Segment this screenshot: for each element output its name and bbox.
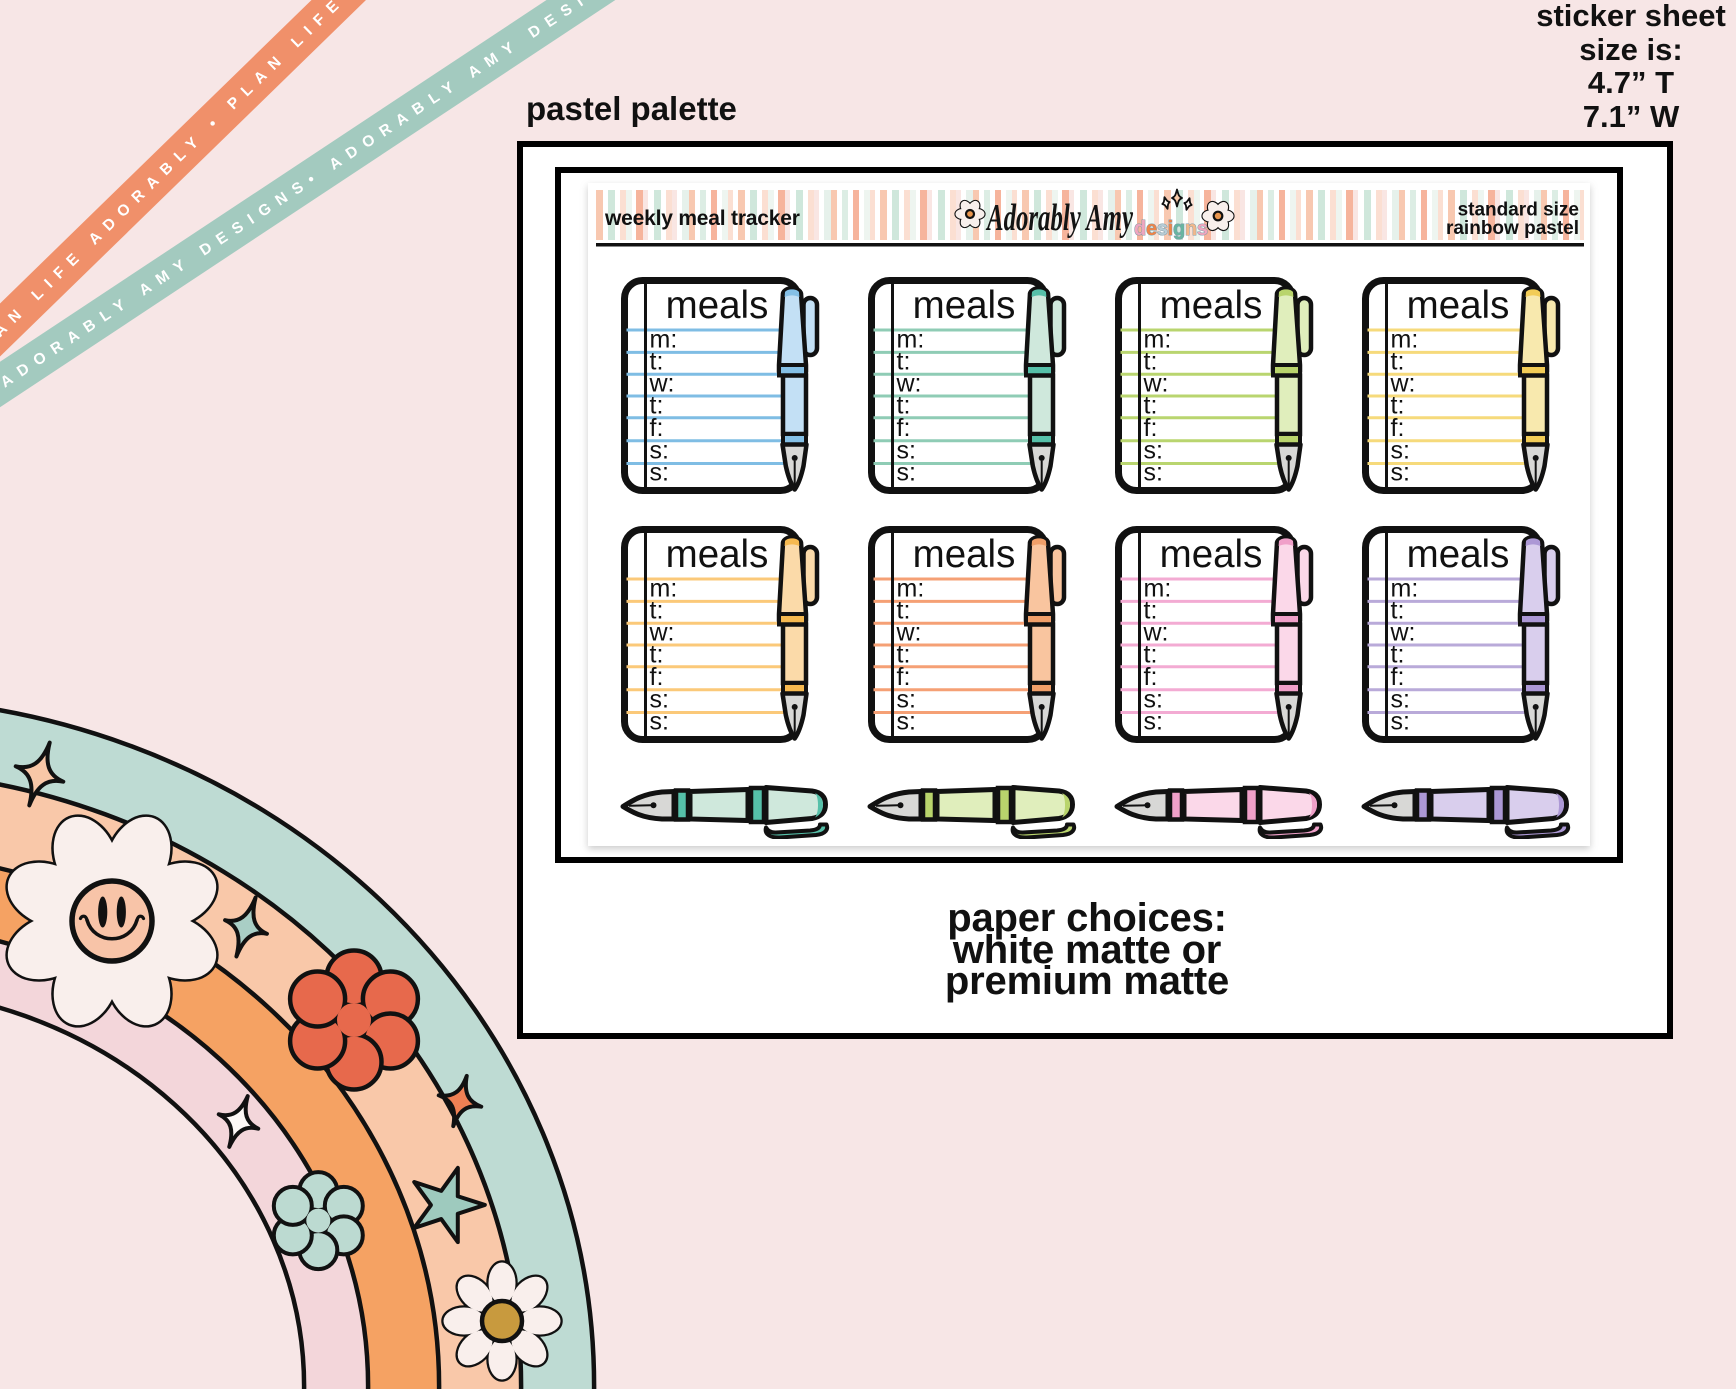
svg-text:meals: meals — [666, 533, 769, 576]
svg-text:s:: s: — [1143, 708, 1162, 736]
svg-text:meals: meals — [912, 284, 1015, 327]
svg-text:meals: meals — [666, 284, 769, 327]
svg-text:s:: s: — [1390, 708, 1409, 736]
svg-text:meals: meals — [912, 533, 1015, 576]
svg-text:s:: s: — [1390, 459, 1409, 487]
svg-text:weekly meal tracker: weekly meal tracker — [604, 207, 800, 230]
svg-text:meals: meals — [1159, 284, 1262, 327]
svg-text:s:: s: — [1143, 459, 1162, 487]
svg-text:s:: s: — [896, 459, 915, 487]
svg-text:meals: meals — [1159, 533, 1262, 576]
svg-text:designs: designs — [1134, 218, 1208, 240]
svg-text:s:: s: — [896, 708, 915, 736]
svg-text:s:: s: — [650, 459, 669, 487]
svg-text:rainbow pastel: rainbow pastel — [1446, 218, 1579, 239]
svg-text:meals: meals — [1406, 533, 1509, 576]
svg-text:meals: meals — [1406, 284, 1509, 327]
svg-text:PLAN LIFE ADORABLY • PLAN LIFE: PLAN LIFE ADORABLY • PLAN LIFE ADORAB — [0, 0, 442, 366]
svg-text:Adorably Amy: Adorably Amy — [986, 197, 1133, 239]
